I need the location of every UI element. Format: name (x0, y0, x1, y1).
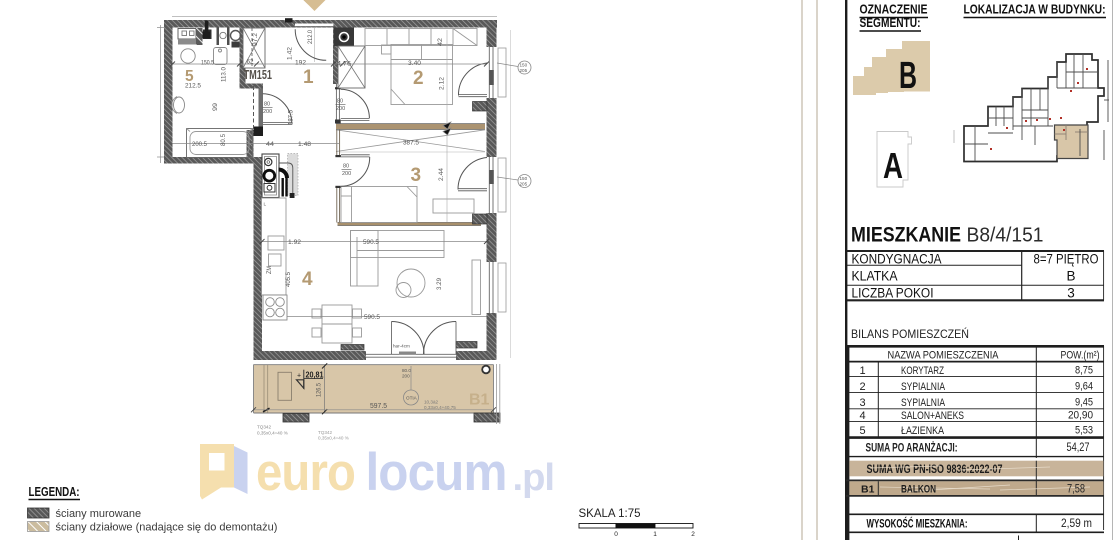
svg-text:NAZWA POMIESZCZENIA: NAZWA POMIESZCZENIA (888, 349, 1000, 361)
svg-text:205: 205 (520, 68, 528, 73)
svg-text:99: 99 (212, 103, 219, 111)
svg-text:212.0: 212.0 (307, 30, 314, 44)
svg-text:10,3à2: 10,3à2 (424, 400, 438, 405)
svg-text:B: B (1066, 269, 1075, 284)
svg-text:OTIA: OTIA (406, 396, 418, 401)
svg-text:113.0: 113.0 (221, 67, 228, 82)
svg-text:5: 5 (859, 425, 865, 437)
svg-text:BALKON: BALKON (901, 484, 936, 496)
svg-text:SYPIALNIA: SYPIALNIA (901, 381, 946, 393)
svg-text:42: 42 (437, 38, 444, 46)
svg-text:POW.(m²): POW.(m²) (1061, 349, 1100, 361)
svg-text:9,45: 9,45 (1075, 396, 1093, 408)
svg-text:200: 200 (402, 374, 410, 379)
svg-text:1.42: 1.42 (287, 47, 294, 60)
svg-text:SUMA WG PN-ISO 9836:2022-07: SUMA WG PN-ISO 9836:2022-07 (867, 462, 1003, 476)
svg-text:150: 150 (520, 176, 528, 181)
svg-text:B1: B1 (469, 392, 490, 409)
svg-text:2,59 m: 2,59 m (1061, 518, 1092, 530)
svg-text:4.76: 4.76 (337, 61, 351, 68)
svg-text:B8/4/151: B8/4/151 (967, 225, 1044, 247)
svg-text:0,35x0,4=40 %: 0,35x0,4=40 % (318, 436, 349, 441)
svg-text:590.5: 590.5 (364, 314, 380, 321)
svg-text:TQ342: TQ342 (318, 430, 332, 435)
svg-text:200: 200 (342, 171, 351, 177)
svg-text:187.5: 187.5 (288, 110, 295, 125)
svg-text:SYPIALNIA: SYPIALNIA (901, 397, 946, 409)
svg-text:97.2: 97.2 (252, 33, 259, 46)
svg-text:8,75: 8,75 (1075, 364, 1093, 376)
svg-text:80: 80 (343, 164, 349, 170)
svg-text:B: B (899, 55, 917, 97)
svg-text:TQ342: TQ342 (257, 425, 271, 430)
svg-text:1: 1 (859, 365, 865, 377)
svg-text:ściany działowe (nadające się: ściany działowe (nadające się do demonta… (56, 522, 278, 534)
svg-text:387.5: 387.5 (403, 140, 419, 147)
svg-text:ZM: ZM (266, 266, 273, 274)
svg-text:LICZBA POKOI: LICZBA POKOI (852, 286, 934, 301)
svg-text:597.5: 597.5 (370, 403, 387, 410)
svg-text:80.5: 80.5 (220, 134, 227, 146)
svg-text:L: L (264, 202, 267, 208)
svg-text:205: 205 (520, 182, 528, 187)
svg-text:KLATKA: KLATKA (852, 269, 898, 284)
svg-text:MIESZKANIE: MIESZKANIE (851, 224, 961, 247)
svg-text:54,27: 54,27 (1067, 442, 1090, 454)
svg-text:0,35x0,4=40 %: 0,35x0,4=40 % (257, 431, 288, 436)
svg-text:192: 192 (295, 60, 306, 67)
svg-text:0,33x0,4+40,75: 0,33x0,4+40,75 (424, 405, 456, 410)
svg-text:1.92: 1.92 (288, 239, 301, 246)
svg-text:9,64: 9,64 (1075, 380, 1093, 392)
svg-text:2.12: 2.12 (439, 77, 446, 90)
svg-text:3: 3 (1067, 286, 1075, 301)
svg-text:A: A (883, 145, 903, 186)
svg-text:ściany murowane: ściany murowane (56, 508, 142, 520)
svg-text:0: 0 (614, 531, 618, 538)
svg-text:150.5: 150.5 (201, 60, 214, 67)
svg-text:44: 44 (266, 141, 274, 148)
svg-text:80: 80 (337, 99, 343, 105)
svg-text:SALON+ANEKS: SALON+ANEKS (901, 410, 964, 422)
svg-text:ŁAZIENKA: ŁAZIENKA (901, 425, 945, 437)
svg-text:4: 4 (859, 410, 865, 422)
svg-text:1.48: 1.48 (298, 141, 311, 148)
svg-text:126.5: 126.5 (316, 383, 323, 397)
svg-text:SKALA 1:75: SKALA 1:75 (579, 508, 641, 520)
svg-text:TM151: TM151 (244, 68, 273, 82)
svg-text:2.44: 2.44 (438, 168, 445, 181)
svg-text:200: 200 (336, 106, 345, 112)
svg-text:1: 1 (653, 531, 657, 538)
svg-text:KORYTARZ: KORYTARZ (901, 365, 944, 377)
svg-text:2: 2 (691, 531, 695, 538)
svg-text:4: 4 (302, 269, 313, 290)
svg-text:5,53: 5,53 (1075, 425, 1093, 437)
svg-text:LOKALIZACJA W BUDYNKU:: LOKALIZACJA W BUDYNKU: (964, 3, 1106, 17)
svg-text:8=7 PIĘTRO: 8=7 PIĘTRO (1034, 251, 1099, 266)
svg-text:BILANS POMIESZCZEŃ: BILANS POMIESZCZEŃ (851, 326, 969, 341)
svg-text:5: 5 (185, 68, 194, 85)
svg-text:20,90: 20,90 (1068, 410, 1093, 422)
svg-text:3.29: 3.29 (436, 278, 443, 290)
svg-text:B1: B1 (861, 483, 875, 495)
svg-text:80.0: 80.0 (402, 368, 411, 373)
svg-text:405.5: 405.5 (285, 272, 292, 287)
svg-text:20,81: 20,81 (306, 370, 324, 379)
svg-text:200: 200 (263, 109, 272, 115)
svg-text:7,58: 7,58 (1067, 483, 1085, 495)
svg-text:3: 3 (859, 397, 865, 409)
svg-text:+: + (297, 373, 301, 380)
svg-text:3: 3 (411, 165, 422, 186)
svg-text:2: 2 (413, 68, 424, 89)
svg-text:62: 62 (247, 59, 254, 66)
svg-text:KONDYGNACJA: KONDYGNACJA (852, 251, 942, 266)
svg-text:LEGENDA:: LEGENDA: (29, 485, 80, 499)
svg-text:har-4cm: har-4cm (393, 344, 410, 349)
svg-text:WYSOKOŚĆ MIESZKANIA:: WYSOKOŚĆ MIESZKANIA: (867, 515, 968, 530)
svg-text:OZNACZENIE: OZNACZENIE (860, 3, 928, 17)
svg-text:SUMA PO ARANŻACJI:: SUMA PO ARANŻACJI: (866, 440, 958, 455)
svg-text:2: 2 (859, 381, 865, 393)
svg-text:200.5: 200.5 (192, 141, 207, 148)
svg-text:80: 80 (264, 102, 270, 108)
svg-text:150: 150 (520, 63, 528, 68)
svg-text:590.5: 590.5 (363, 239, 379, 246)
svg-text:1: 1 (303, 67, 314, 88)
svg-text:3.40: 3.40 (408, 60, 421, 67)
